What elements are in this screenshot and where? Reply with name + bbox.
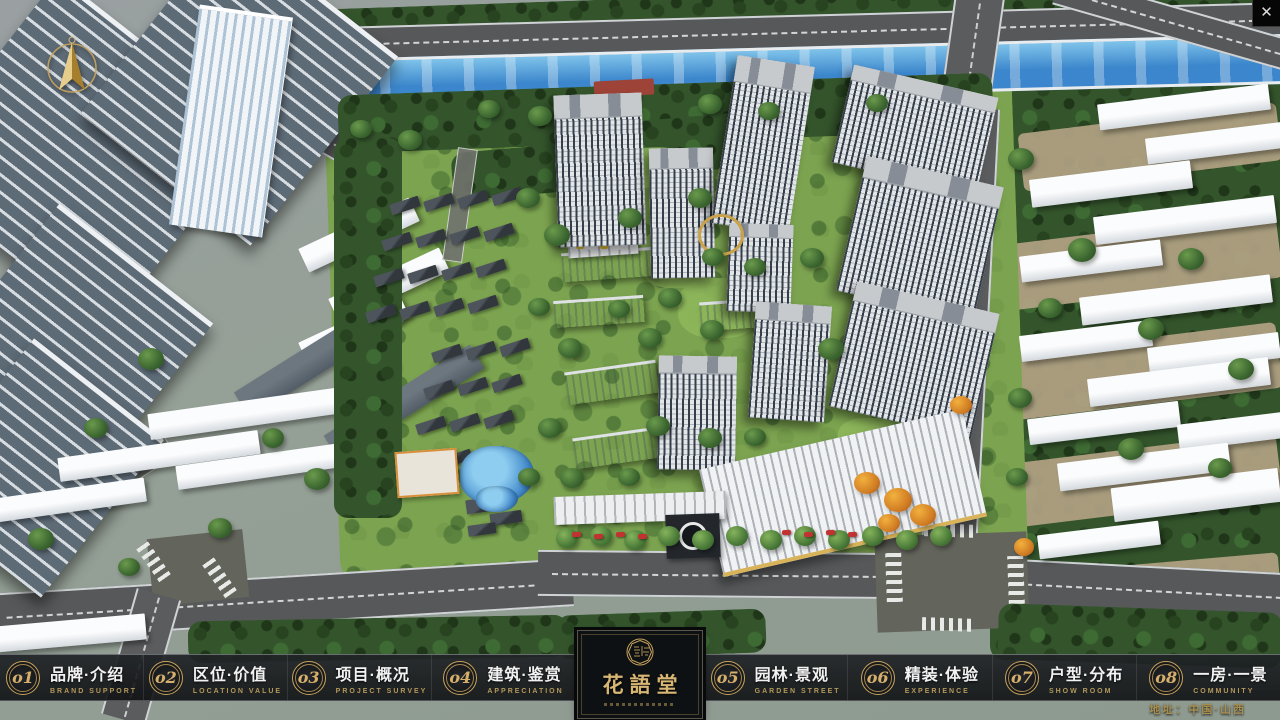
map-zebra xyxy=(885,552,903,603)
map-tree xyxy=(698,428,722,448)
menu-item-landscape[interactable]: o5 园林·景观GARDEN STREET xyxy=(704,655,848,700)
menu-label: 一房·一景 xyxy=(1193,661,1267,685)
map-car xyxy=(782,530,791,535)
map-tree xyxy=(702,248,724,266)
map-tree xyxy=(1068,238,1096,262)
map-stree xyxy=(556,528,578,548)
map-tree xyxy=(700,320,724,340)
map-zebra xyxy=(1007,556,1025,605)
map-car xyxy=(848,532,857,537)
map-tree xyxy=(1008,148,1034,170)
map-otree xyxy=(910,504,936,526)
map-otree xyxy=(884,488,912,512)
menu-item-decoration-experience[interactable]: o6 精装·体验EXPERIENCE xyxy=(848,655,992,700)
map-zebrah xyxy=(922,617,974,632)
menu-number: o4 xyxy=(449,668,471,687)
menu-sublabel: GARDEN STREET xyxy=(755,688,841,695)
menu-number-badge: o5 xyxy=(711,661,745,695)
project-address: 地址：中国·山西 xyxy=(1149,701,1246,717)
map-tree xyxy=(516,188,540,208)
map-tree xyxy=(646,416,670,436)
map-tree xyxy=(538,418,562,438)
menu-number-badge: o6 xyxy=(861,661,895,695)
map-forest xyxy=(334,138,402,518)
map-tree xyxy=(84,418,108,438)
map-tree xyxy=(618,208,642,228)
menu-sublabel: LOCATION VALUE xyxy=(193,688,282,695)
project-logo-title: 花語堂 xyxy=(597,669,684,699)
map-tree xyxy=(866,94,888,112)
map-tree xyxy=(1008,388,1032,408)
map-otree xyxy=(1014,538,1034,556)
menu-number-badge: o4 xyxy=(443,661,477,695)
map-tree xyxy=(528,106,552,126)
map-tree xyxy=(1208,458,1232,478)
close-button[interactable]: ✕ xyxy=(1252,0,1280,27)
map-obuild xyxy=(394,448,459,498)
map-tree xyxy=(560,468,584,488)
map-otree xyxy=(854,472,880,494)
map-tree xyxy=(118,558,140,576)
menu-number-badge: o7 xyxy=(1005,661,1039,695)
menu-label: 园林·景观 xyxy=(755,661,829,685)
map-stree xyxy=(930,526,952,546)
map-tree xyxy=(398,130,422,150)
logo-subtext-line xyxy=(604,703,676,706)
map-tree xyxy=(758,102,780,120)
menu-item-room-view[interactable]: o8 一房·一景COMMUNITY xyxy=(1137,655,1280,700)
map-car xyxy=(826,530,835,535)
menu-item-location-value[interactable]: o2 区位·价值LOCATION VALUE xyxy=(144,655,288,700)
map-tree xyxy=(1228,358,1254,380)
menu-number: o7 xyxy=(1011,668,1033,687)
menu-sublabel: COMMUNITY xyxy=(1193,688,1254,695)
map-tree xyxy=(744,428,766,446)
map-stree xyxy=(760,530,782,550)
map-stree xyxy=(726,526,748,546)
menu-label: 户型·分布 xyxy=(1049,661,1123,685)
menu-sublabel: BRAND SUPPORT xyxy=(50,688,137,695)
compass-icon xyxy=(42,30,102,98)
menu-label: 精装·体验 xyxy=(905,661,979,685)
map-car xyxy=(572,532,581,537)
map-car xyxy=(804,532,813,537)
map-tree xyxy=(518,468,540,486)
menu-item-brand-intro[interactable]: o1 品牌·介绍BRAND SUPPORT xyxy=(0,655,144,700)
map-otree xyxy=(950,396,972,414)
map-tree xyxy=(1038,298,1062,318)
map-car xyxy=(616,532,625,537)
map-tree xyxy=(208,518,232,538)
map-otree xyxy=(878,514,900,532)
map-tree xyxy=(800,248,824,268)
menu-number: o2 xyxy=(155,668,177,687)
menu-number-badge: o2 xyxy=(149,661,183,695)
menu-group-left: o1 品牌·介绍BRAND SUPPORT o2 区位·价值LOCATION V… xyxy=(0,655,576,700)
map-tree xyxy=(638,328,662,348)
map-tree xyxy=(698,94,722,114)
menu-number: o8 xyxy=(1155,668,1177,687)
map-tree xyxy=(744,258,766,276)
map-stree xyxy=(896,530,918,550)
menu-sublabel: PROJECT SURVEY xyxy=(336,688,428,695)
map-stree xyxy=(658,526,680,546)
menu-number: o3 xyxy=(298,668,320,687)
map-tree xyxy=(1118,438,1144,460)
map-tree xyxy=(618,468,640,486)
map-tree xyxy=(350,120,372,138)
menu-sublabel: APPRECIATION xyxy=(487,688,563,695)
map-tree xyxy=(1138,318,1164,340)
map-tree xyxy=(608,300,630,318)
map-tree xyxy=(304,468,330,490)
map-car xyxy=(638,534,647,539)
menu-number: o6 xyxy=(867,668,889,687)
map-tower xyxy=(748,301,832,422)
menu-number-badge: o1 xyxy=(6,661,40,695)
menu-number-badge: o8 xyxy=(1149,661,1183,695)
project-logo-panel[interactable]: 花語堂 xyxy=(577,630,703,719)
map-tree xyxy=(138,348,164,370)
menu-number-badge: o3 xyxy=(292,661,326,695)
menu-item-architecture[interactable]: o4 建筑·鉴赏APPRECIATION xyxy=(432,655,576,700)
map-tower xyxy=(657,355,737,470)
map-stree xyxy=(692,530,714,550)
map-car xyxy=(594,534,603,539)
menu-label: 品牌·介绍 xyxy=(50,661,124,685)
map-tree xyxy=(1178,248,1204,270)
logo-seal-icon xyxy=(625,637,655,667)
map-tree xyxy=(558,338,582,358)
menu-group-right: o5 园林·景观GARDEN STREET o6 精装·体验EXPERIENCE… xyxy=(704,655,1280,700)
menu-label: 项目·概况 xyxy=(336,661,410,685)
menu-label: 区位·价值 xyxy=(193,661,267,685)
map-view[interactable] xyxy=(0,0,1280,720)
map-tree xyxy=(658,288,682,308)
map-tree xyxy=(688,188,712,208)
menu-item-floorplan-distribution[interactable]: o7 户型·分布SHOW ROOM xyxy=(993,655,1137,700)
menu-number: o5 xyxy=(717,668,739,687)
map-tree xyxy=(1006,468,1028,486)
map-tree xyxy=(28,528,54,550)
map-tree xyxy=(818,338,844,360)
menu-number: o1 xyxy=(12,668,34,687)
menu-label: 建筑·鉴赏 xyxy=(487,661,561,685)
map-tree xyxy=(528,298,550,316)
map-tree xyxy=(544,224,570,246)
menu-sublabel: EXPERIENCE xyxy=(905,688,970,695)
map-carW xyxy=(612,245,620,250)
presentation-window: ✕ o1 品牌·介绍BRAND SUPPORT o2 区位·价值LOCATION… xyxy=(0,0,1280,720)
menu-sublabel: SHOW ROOM xyxy=(1049,688,1113,695)
map-tree xyxy=(478,100,500,118)
menu-item-project-overview[interactable]: o3 项目·概况PROJECT SURVEY xyxy=(288,655,432,700)
map-tree xyxy=(262,428,284,448)
